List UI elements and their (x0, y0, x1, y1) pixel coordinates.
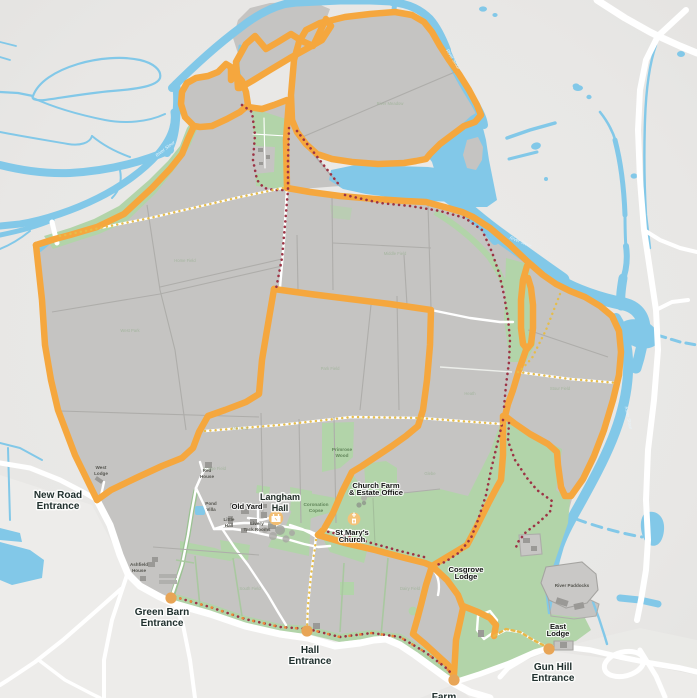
svg-text:Livery: Livery (250, 521, 264, 526)
svg-text:Park Field: Park Field (321, 366, 341, 371)
svg-text:Lodge: Lodge (94, 471, 108, 476)
svg-text:Ashfield: Ashfield (130, 562, 148, 567)
svg-text:Lodge Field: Lodge Field (204, 466, 227, 471)
svg-text:Entrance: Entrance (141, 618, 184, 629)
svg-text:Hall: Hall (301, 645, 320, 656)
svg-text:West Park: West Park (120, 328, 140, 333)
svg-text:Entrance: Entrance (37, 501, 80, 512)
svg-text:Lodge: Lodge (455, 572, 478, 581)
svg-text:West: West (96, 465, 107, 470)
svg-text:New Road: New Road (34, 490, 82, 501)
svg-text:& Estate Office: & Estate Office (349, 488, 403, 497)
svg-text:Mill Field: Mill Field (232, 426, 249, 431)
svg-text:Heath: Heath (464, 391, 476, 396)
svg-text:House: House (200, 474, 214, 479)
svg-text:House: House (132, 568, 146, 573)
svg-text:Farm: Farm (432, 692, 457, 698)
svg-text:Dairy Field: Dairy Field (400, 586, 421, 591)
svg-text:Old Yard: Old Yard (231, 502, 262, 511)
svg-text:Wood: Wood (336, 453, 349, 458)
svg-text:Little: Little (224, 517, 235, 522)
svg-text:Coronation: Coronation (304, 502, 329, 507)
svg-text:Middle Field: Middle Field (384, 251, 407, 256)
svg-text:Entrance: Entrance (289, 656, 332, 667)
svg-text:Hall: Hall (272, 503, 289, 513)
svg-text:Entrance: Entrance (532, 673, 575, 684)
svg-text:Stour Field: Stour Field (550, 386, 571, 391)
svg-text:Langham: Langham (260, 492, 300, 502)
svg-text:Green Barn: Green Barn (135, 607, 189, 618)
svg-text:South Field: South Field (239, 586, 261, 591)
svg-text:Copse: Copse (309, 508, 324, 513)
svg-text:Church: Church (339, 535, 366, 544)
svg-text:Lodge: Lodge (547, 629, 570, 638)
svg-text:Gun Hill: Gun Hill (534, 662, 573, 673)
svg-text:River Meadow: River Meadow (377, 101, 405, 106)
svg-text:Glebe: Glebe (424, 471, 436, 476)
svg-text:Hall: Hall (225, 523, 233, 528)
svg-text:Villa: Villa (206, 507, 216, 512)
svg-text:River Paddocks: River Paddocks (555, 583, 590, 588)
svg-text:Home Field: Home Field (174, 258, 196, 263)
svg-text:Pond: Pond (205, 501, 217, 506)
svg-text:Primrose: Primrose (332, 447, 353, 452)
svg-text:Tack Rooms: Tack Rooms (244, 527, 271, 532)
